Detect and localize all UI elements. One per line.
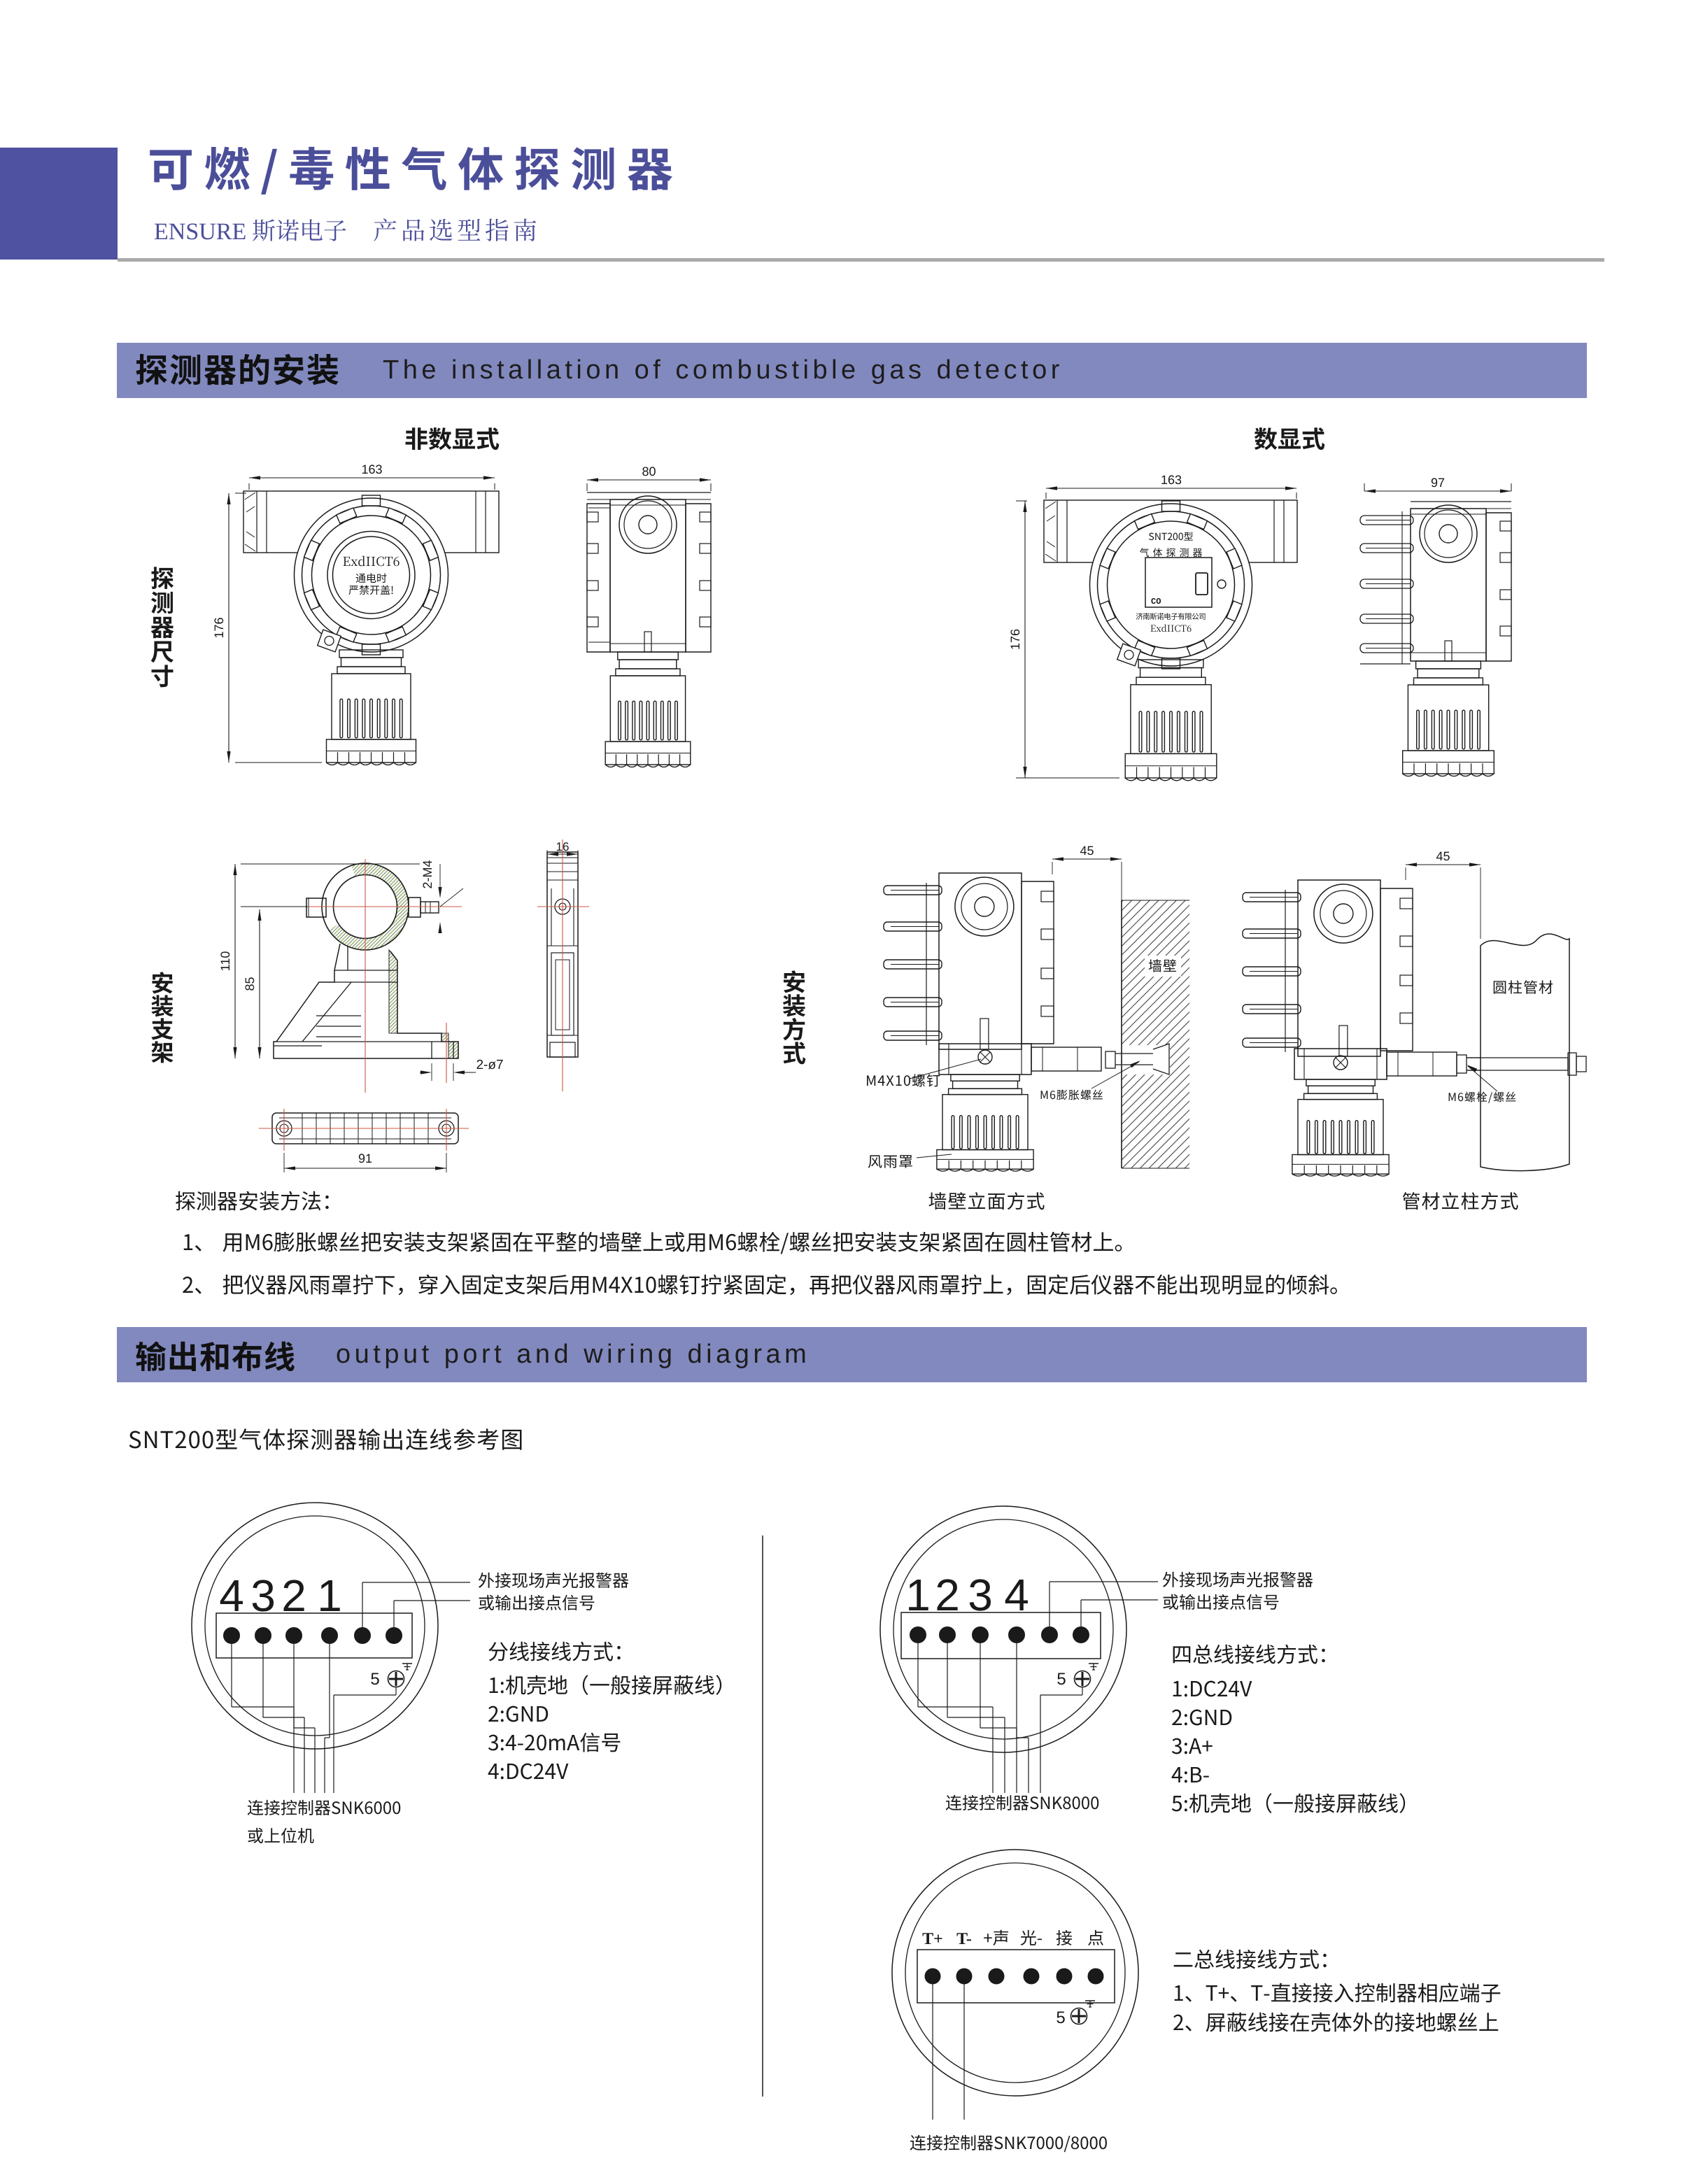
svg-text:4: 4 xyxy=(219,1570,244,1621)
svg-text:3: 3 xyxy=(250,1570,276,1621)
svg-text:1: 1 xyxy=(317,1570,342,1621)
svg-text:176: 176 xyxy=(1008,629,1022,650)
svg-text:5: 5 xyxy=(1057,1670,1066,1689)
svg-text:16: 16 xyxy=(556,840,570,853)
svg-text:110: 110 xyxy=(218,951,232,972)
svg-text:80: 80 xyxy=(642,465,656,478)
svg-text:85: 85 xyxy=(243,977,257,991)
svg-text:5: 5 xyxy=(370,1670,379,1689)
svg-text:3: 3 xyxy=(968,1570,993,1620)
svg-text:T+: T+ xyxy=(922,1930,943,1948)
svg-text:T-: T- xyxy=(956,1930,972,1948)
svg-text:CO: CO xyxy=(1151,597,1161,607)
svg-text:163: 163 xyxy=(361,462,382,476)
svg-text:1: 1 xyxy=(905,1570,931,1620)
svg-text:2: 2 xyxy=(935,1570,960,1620)
svg-text:4: 4 xyxy=(1004,1570,1029,1620)
svg-text:91: 91 xyxy=(358,1151,372,1165)
svg-text:5: 5 xyxy=(1056,2008,1065,2027)
svg-text:45: 45 xyxy=(1080,844,1094,858)
svg-text:2: 2 xyxy=(281,1570,306,1621)
svg-text:97: 97 xyxy=(1431,476,1445,490)
svg-text:ENSURE: ENSURE xyxy=(154,219,246,245)
svg-text:176: 176 xyxy=(212,617,226,638)
svg-text:163: 163 xyxy=(1161,473,1182,487)
svg-text:45: 45 xyxy=(1436,849,1450,863)
svg-text:2-M4: 2-M4 xyxy=(421,860,434,888)
svg-text:2-ø7: 2-ø7 xyxy=(476,1058,503,1072)
